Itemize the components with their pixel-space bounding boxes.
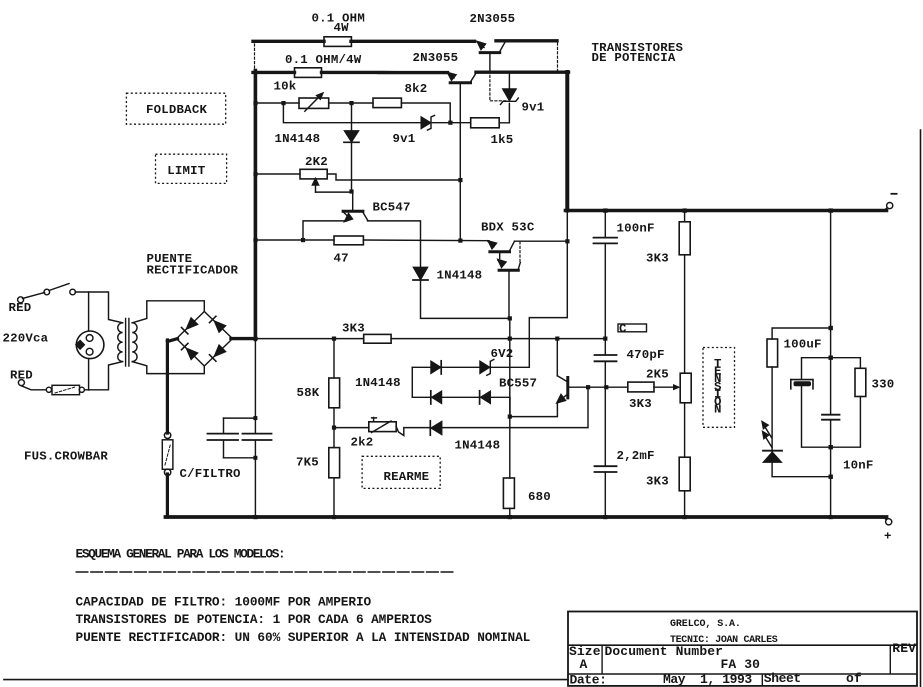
svg-text:47: 47	[334, 252, 349, 266]
svg-text:C/FILTRO: C/FILTRO	[180, 467, 241, 481]
svg-text:1N4148: 1N4148	[455, 439, 501, 453]
svg-text:BC547: BC547	[373, 201, 411, 215]
svg-text:BC557: BC557	[499, 377, 537, 391]
svg-text:RED: RED	[9, 301, 32, 315]
svg-text:TRANSISTORES DE POTENCIA: 1 PO: TRANSISTORES DE POTENCIA: 1 POR CADA 6 A…	[76, 612, 433, 627]
svg-text:RED: RED	[10, 368, 33, 382]
svg-text:2k2: 2k2	[351, 435, 374, 449]
svg-text:PUENTE RECTIFICADOR: UN 60% SU: PUENTE RECTIFICADOR: UN 60% SUPERIOR A L…	[76, 630, 531, 645]
svg-text:6V2: 6V2	[491, 347, 514, 361]
svg-text:May 1, 1993: May 1, 1993	[663, 672, 752, 687]
svg-text:220Vca: 220Vca	[3, 332, 49, 346]
svg-text:58K: 58K	[297, 386, 320, 400]
svg-text:CAPACIDAD DE FILTRO: 1000MF PO: CAPACIDAD DE FILTRO: 1000MF POR AMPERIO	[76, 595, 372, 610]
svg-text:C: C	[619, 322, 627, 336]
svg-text:1N4148: 1N4148	[355, 376, 401, 390]
svg-text:2N3055: 2N3055	[413, 51, 459, 65]
svg-text:Document Number: Document Number	[605, 644, 724, 659]
svg-text:3K3: 3K3	[342, 322, 365, 336]
svg-text:1N4148: 1N4148	[437, 269, 483, 283]
svg-text:680: 680	[528, 490, 551, 504]
svg-text:+: +	[884, 530, 892, 544]
svg-text:3K3: 3K3	[646, 475, 669, 489]
svg-text:8k2: 8k2	[405, 82, 428, 96]
svg-text:4W: 4W	[334, 21, 350, 35]
svg-text:2N3055: 2N3055	[470, 12, 516, 26]
svg-text:REARME: REARME	[384, 470, 430, 484]
svg-text:470pF: 470pF	[627, 348, 665, 362]
svg-text:1N4148: 1N4148	[275, 132, 321, 146]
svg-text:FUS.CROWBAR: FUS.CROWBAR	[24, 450, 108, 464]
svg-text:GRELCO, S.A.: GRELCO, S.A.	[670, 619, 741, 630]
svg-text:100uF: 100uF	[784, 338, 822, 352]
svg-text:of: of	[846, 671, 862, 686]
svg-text:9v1: 9v1	[393, 132, 416, 146]
svg-text:FA 30: FA 30	[721, 657, 761, 672]
svg-text:A: A	[580, 657, 588, 672]
svg-text:3K3: 3K3	[646, 251, 669, 265]
svg-text:DE POTENCIA: DE POTENCIA	[592, 51, 676, 65]
svg-text:N: N	[714, 403, 722, 417]
svg-text:330: 330	[872, 377, 895, 391]
svg-text:BDX 53C: BDX 53C	[481, 221, 535, 235]
svg-text:Sheet: Sheet	[764, 671, 801, 686]
svg-text:7K5: 7K5	[296, 455, 319, 469]
svg-text:2K2: 2K2	[305, 155, 328, 169]
svg-text:Date:: Date:	[570, 672, 607, 687]
svg-text:2K5: 2K5	[646, 368, 669, 382]
svg-text:REV: REV	[892, 641, 916, 656]
svg-text:FOLDBACK: FOLDBACK	[146, 103, 207, 117]
svg-text:2,2mF: 2,2mF	[617, 449, 655, 463]
svg-text:RECTIFICADOR: RECTIFICADOR	[147, 264, 239, 278]
svg-text:3K3: 3K3	[629, 397, 652, 411]
svg-text:100nF: 100nF	[617, 222, 655, 236]
svg-text:10k: 10k	[274, 79, 297, 93]
svg-text:10nF: 10nF	[843, 459, 874, 473]
svg-text:LIMIT: LIMIT	[167, 164, 206, 178]
svg-text:0.1 OHM/4W: 0.1 OHM/4W	[285, 53, 362, 67]
svg-text:ESQUEMA GENERAL PARA LOS MODEL: ESQUEMA GENERAL PARA LOS MODELOS:	[76, 547, 285, 562]
svg-text:9v1: 9v1	[522, 101, 545, 115]
svg-text:1k5: 1k5	[491, 133, 514, 147]
